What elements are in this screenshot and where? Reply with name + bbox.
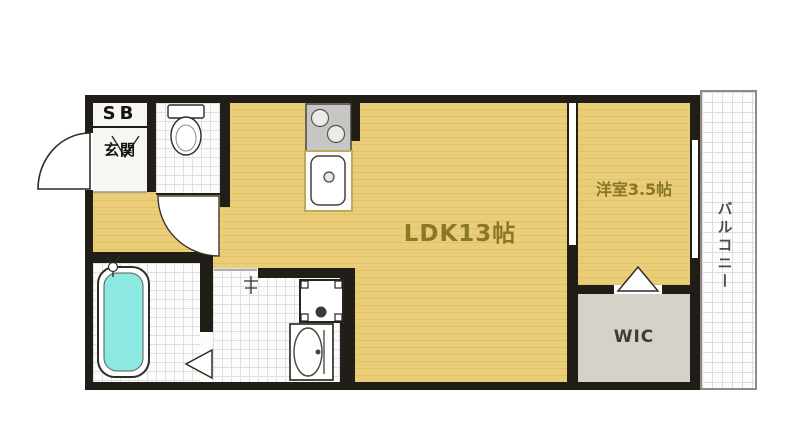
stove-burner xyxy=(312,110,329,127)
toilet-door xyxy=(158,196,219,256)
bathtub-basin xyxy=(104,273,143,371)
toilet-bowl xyxy=(171,117,201,155)
stove-burner xyxy=(328,126,345,143)
wic-folding-door xyxy=(618,267,658,291)
pan-corner xyxy=(301,281,308,288)
sink-drain xyxy=(324,172,334,182)
pan-corner xyxy=(335,281,342,288)
pan-corner xyxy=(335,314,342,321)
western-room-label: 洋室3.5帖 xyxy=(576,181,692,199)
wic-label: WIC xyxy=(578,328,690,347)
washbasin-drain xyxy=(316,350,321,355)
toilet-tank xyxy=(168,105,204,118)
kitchen-stove xyxy=(306,104,351,151)
ldk-label: LDK13帖 xyxy=(380,222,540,247)
balcony-label: バルコニー xyxy=(716,188,733,303)
bathroom-folding-door xyxy=(186,350,212,378)
pan-corner xyxy=(301,314,308,321)
shoe-box-label: SB xyxy=(96,104,144,124)
entrance-label: 玄関 xyxy=(96,142,144,159)
floor-plan: SB 玄関 LDK13帖 洋室3.5帖 WIC バルコニー xyxy=(0,0,800,447)
pan-drain xyxy=(316,307,327,318)
entrance-door xyxy=(38,133,90,189)
bathtub-faucet xyxy=(109,263,118,272)
